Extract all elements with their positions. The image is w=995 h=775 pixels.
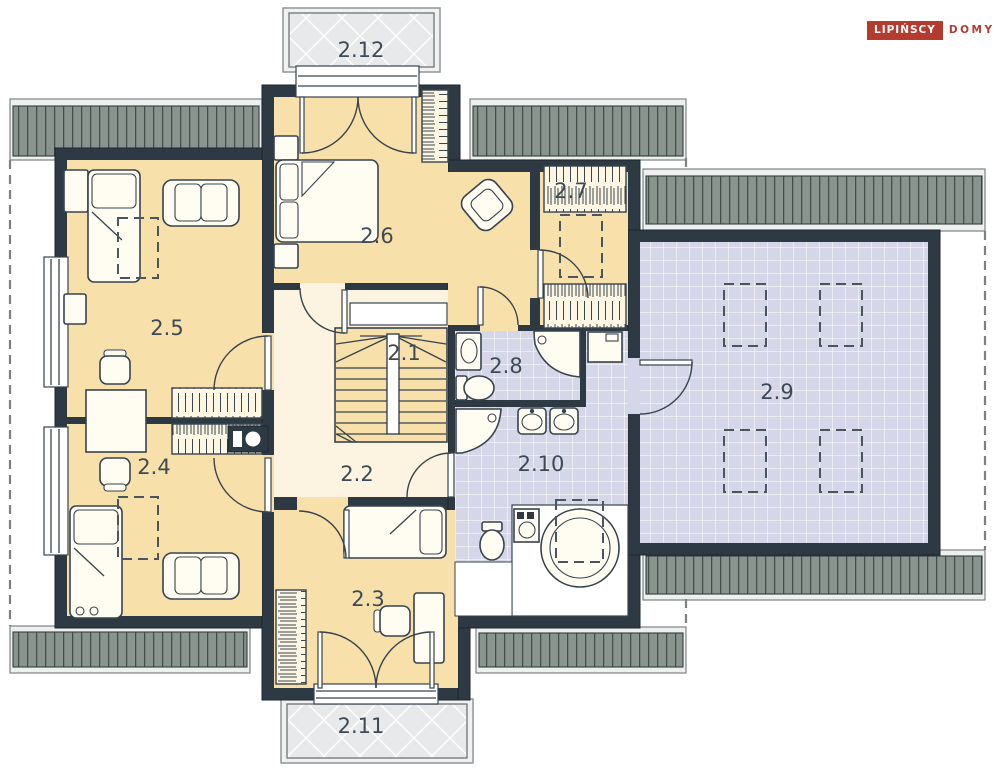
wardrobe bbox=[172, 388, 262, 418]
room-label-2-4: 2.4 bbox=[137, 455, 170, 479]
sofa bbox=[163, 553, 239, 599]
room-label-2-11: 2.11 bbox=[338, 714, 385, 738]
room-label-2-5: 2.5 bbox=[150, 316, 183, 340]
room-label-2-10: 2.10 bbox=[518, 452, 565, 476]
room-label-2-7: 2.7 bbox=[554, 179, 587, 203]
brand-logo-primary: LIPIŃSCY bbox=[867, 21, 943, 40]
roof-band-top-center bbox=[473, 106, 683, 156]
wardrobe bbox=[544, 284, 626, 328]
balcony-door-sill-top bbox=[296, 66, 419, 97]
floor-plan-drawing: 2.12 2.6 2.7 2.5 2.1 2.8 2.9 2.4 2.2 2.1… bbox=[0, 0, 995, 775]
staircase bbox=[335, 303, 447, 442]
double-desk bbox=[86, 390, 146, 452]
window-left-2-4 bbox=[44, 427, 68, 555]
floor-dot bbox=[76, 607, 84, 615]
stair-railing bbox=[350, 303, 447, 325]
toilet bbox=[480, 522, 504, 560]
brand-logo-secondary: DOMY bbox=[949, 25, 995, 36]
room-label-2-9: 2.9 bbox=[760, 380, 793, 404]
nightstand bbox=[274, 244, 298, 268]
room-label-2-12: 2.12 bbox=[338, 38, 385, 62]
roof-band-bottom-left bbox=[13, 632, 247, 667]
single-bed bbox=[88, 170, 140, 282]
nightstand bbox=[274, 136, 298, 160]
single-bed bbox=[344, 506, 446, 558]
roof-band-top-right bbox=[646, 176, 982, 224]
room-label-2-6: 2.6 bbox=[360, 224, 393, 248]
roof-band-bottom-right bbox=[646, 556, 982, 594]
nightstand bbox=[64, 170, 88, 212]
platform-step bbox=[455, 562, 512, 616]
floor-plan-page: 2.12 2.6 2.7 2.5 2.1 2.8 2.9 2.4 2.2 2.1… bbox=[0, 0, 995, 775]
washing-machine bbox=[514, 509, 539, 542]
room-label-2-2: 2.2 bbox=[340, 462, 373, 486]
wardrobe bbox=[276, 590, 306, 684]
nightstand bbox=[64, 294, 86, 324]
toilet bbox=[456, 376, 494, 400]
brand-logo: LIPIŃSCY DOMY bbox=[867, 21, 995, 40]
round-bathtub bbox=[541, 509, 619, 587]
roof-band-bottom-center bbox=[479, 633, 683, 667]
bath-cabinet bbox=[588, 332, 622, 362]
washbasin bbox=[456, 333, 481, 370]
desk-chair bbox=[100, 350, 130, 384]
room-label-2-3: 2.3 bbox=[351, 587, 384, 611]
sofa bbox=[163, 180, 239, 226]
room-label-2-1: 2.1 bbox=[387, 341, 420, 365]
desk-chair bbox=[100, 458, 130, 491]
floor-dot bbox=[90, 607, 98, 615]
wardrobe bbox=[422, 90, 448, 162]
single-bed bbox=[70, 506, 122, 618]
dresser-unit bbox=[228, 426, 268, 452]
room-label-2-8: 2.8 bbox=[489, 354, 522, 378]
